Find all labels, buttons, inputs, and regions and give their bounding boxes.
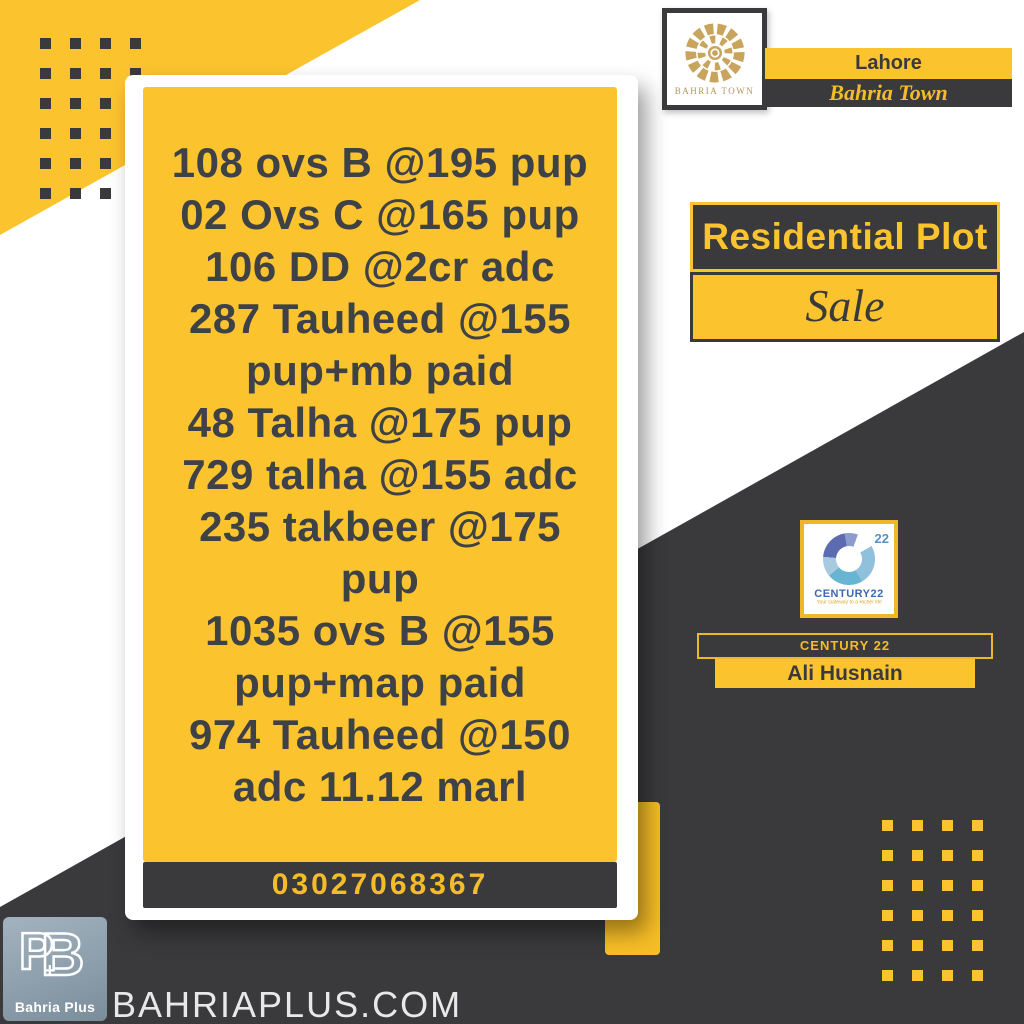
listing-line: 729 talha @155 adc (143, 449, 617, 501)
dot (100, 188, 111, 199)
dot (912, 880, 923, 891)
bahria-plus-monogram-icon: P B + (17, 921, 93, 985)
flyer: 108 ovs B @195 pup02 Ovs C @165 pup106 D… (0, 0, 1024, 1024)
svg-text:+: + (44, 960, 56, 982)
dot (972, 910, 983, 921)
dot (942, 940, 953, 951)
dot (972, 820, 983, 831)
dot (100, 38, 111, 49)
dot (882, 970, 893, 981)
listing-line: 106 DD @2cr adc (143, 241, 617, 293)
dot (912, 910, 923, 921)
listing-line: pup+map paid (143, 657, 617, 709)
dot (100, 98, 111, 109)
website-text: BAHRIAPLUS.COM (112, 984, 462, 1024)
dot (40, 98, 51, 109)
century22-logo-box: 22 CENTURY22 Your Gateway to a Richer li… (800, 520, 898, 618)
dot (942, 820, 953, 831)
dot (882, 880, 893, 891)
dot (70, 38, 81, 49)
listing-line: 1035 ovs B @155 (143, 605, 617, 657)
dot (912, 970, 923, 981)
bahria-town-emblem-icon (684, 22, 746, 84)
dot (70, 68, 81, 79)
phone-bar: 03027068367 (143, 862, 617, 908)
dot (912, 940, 923, 951)
dot (882, 940, 893, 951)
offer-status-box: Sale (690, 272, 1000, 342)
dot (912, 820, 923, 831)
listing-line: adc 11.12 marl (143, 761, 617, 813)
bahria-plus-label: Bahria Plus (15, 999, 95, 1015)
dot (972, 850, 983, 861)
listing-line: 48 Talha @175 pup (143, 397, 617, 449)
dot (882, 910, 893, 921)
dot (40, 128, 51, 139)
bottom-right-dot-grid (882, 820, 983, 981)
bahria-plus-logo-box: P B + Bahria Plus (3, 917, 107, 1021)
dot (130, 38, 141, 49)
dot (972, 880, 983, 891)
dot (942, 970, 953, 981)
listing-line: 974 Tauheed @150 (143, 709, 617, 761)
dot (100, 158, 111, 169)
dot (972, 970, 983, 981)
century22-logo-text: CENTURY22 (814, 588, 884, 600)
dot (100, 128, 111, 139)
dot (70, 158, 81, 169)
dot (100, 68, 111, 79)
bahria-town-logo-box: BAHRIA TOWN (662, 8, 767, 110)
listing-line: 235 takbeer @175 (143, 501, 617, 553)
phone-number: 03027068367 (272, 868, 489, 901)
century22-logo-icon: 22 (823, 533, 875, 585)
listing-line: 02 Ovs C @165 pup (143, 189, 617, 241)
community-bar: Bahria Town (765, 79, 1012, 107)
dot (70, 188, 81, 199)
dot (40, 68, 51, 79)
bahria-town-logo-label: BAHRIA TOWN (675, 86, 754, 96)
century22-tagline: Your Gateway to a Richer life (816, 600, 881, 605)
dot (912, 850, 923, 861)
agent-name-bar: Ali Husnain (715, 659, 975, 688)
century22-logo-number: 22 (875, 531, 889, 546)
city-bar: Lahore (765, 48, 1012, 79)
listing-line: pup (143, 553, 617, 605)
dot (882, 820, 893, 831)
dot (972, 940, 983, 951)
dot (942, 880, 953, 891)
listing-lines: 108 ovs B @195 pup02 Ovs C @165 pup106 D… (143, 87, 617, 862)
listing-line: pup+mb paid (143, 345, 617, 397)
dot (70, 98, 81, 109)
dot (40, 158, 51, 169)
agency-bar: CENTURY 22 (697, 633, 993, 659)
offer-type-box: Residential Plot (690, 202, 1000, 272)
listing-line: 108 ovs B @195 pup (143, 137, 617, 189)
dot (882, 850, 893, 861)
listing-card: 108 ovs B @195 pup02 Ovs C @165 pup106 D… (125, 75, 638, 920)
dot (70, 128, 81, 139)
dot (40, 38, 51, 49)
dot (942, 910, 953, 921)
dot (40, 188, 51, 199)
dot (942, 850, 953, 861)
listing-line: 287 Tauheed @155 (143, 293, 617, 345)
